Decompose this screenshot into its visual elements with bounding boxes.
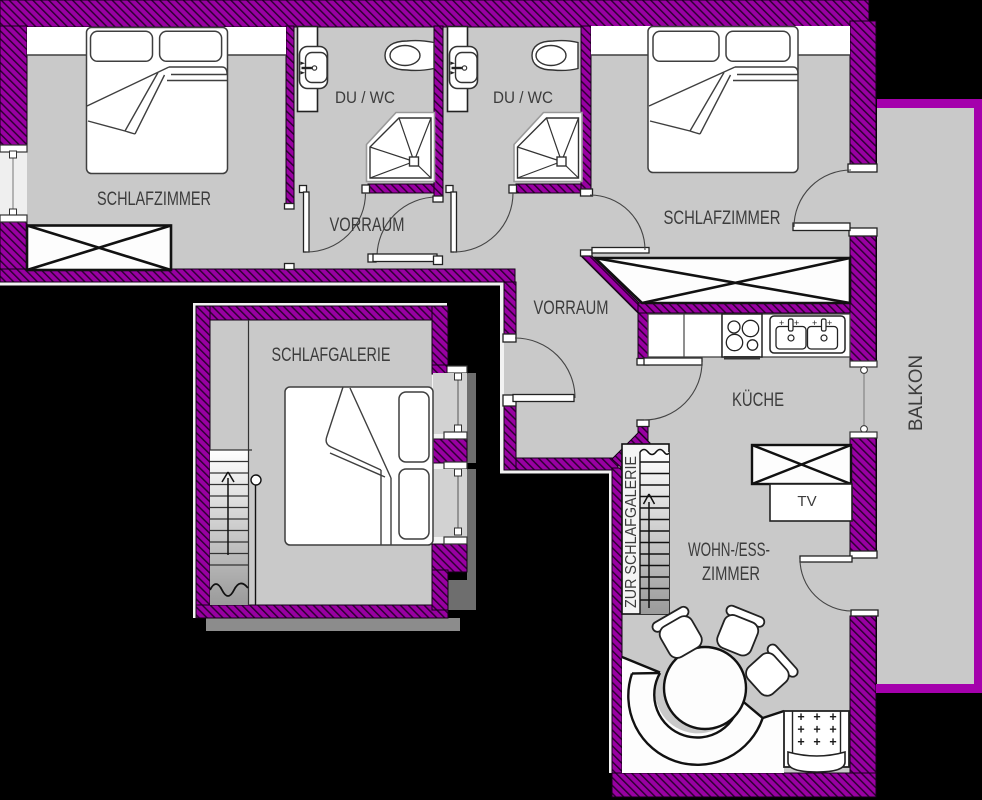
svg-text:+: + [812, 318, 817, 328]
svg-text:BALKON: BALKON [905, 355, 927, 431]
svg-text:+: + [827, 318, 832, 328]
svg-text:ZIMMER: ZIMMER [702, 563, 760, 585]
svg-text:+: + [797, 735, 804, 749]
svg-text:+: + [794, 318, 799, 328]
svg-text:ZUR SCHLAFGALERIE: ZUR SCHLAFGALERIE [623, 456, 640, 608]
svg-text:KÜCHE: KÜCHE [732, 389, 784, 411]
svg-text:+: + [829, 735, 836, 749]
svg-text:VORRAUM: VORRAUM [330, 214, 405, 236]
svg-text:DU / WC: DU / WC [335, 89, 395, 107]
svg-text:+: + [779, 318, 784, 328]
svg-text:DU / WC: DU / WC [493, 89, 553, 107]
svg-text:SCHLAFZIMMER: SCHLAFZIMMER [664, 207, 781, 229]
svg-text:SCHLAFZIMMER: SCHLAFZIMMER [97, 188, 211, 210]
svg-text:SCHLAFGALERIE: SCHLAFGALERIE [272, 344, 391, 366]
svg-text:WOHN-/ESS-: WOHN-/ESS- [688, 539, 770, 561]
svg-text:+: + [813, 735, 820, 749]
svg-text:VORRAUM: VORRAUM [534, 297, 609, 319]
svg-text:TV: TV [797, 493, 816, 510]
